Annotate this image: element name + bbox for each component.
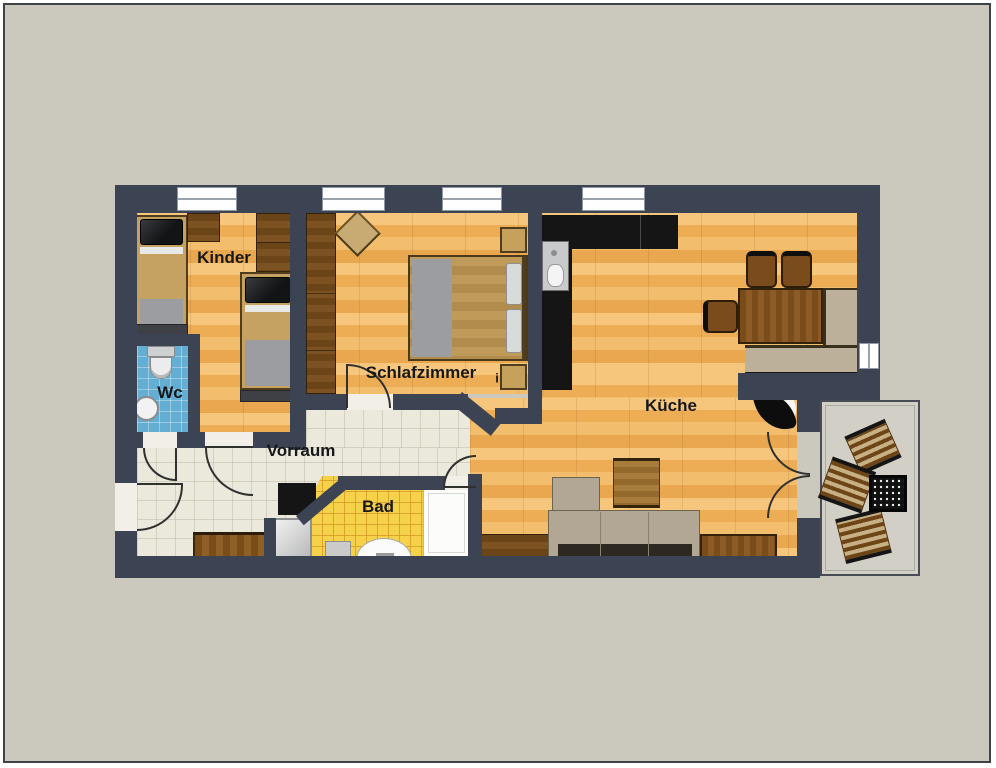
sofa-seam bbox=[600, 512, 601, 561]
double-bed bbox=[408, 255, 528, 361]
kinder-bed-2-blanket bbox=[245, 340, 291, 386]
wall-wc-right bbox=[188, 334, 200, 448]
balcony-table bbox=[869, 475, 907, 512]
double-bed-pillow-2 bbox=[506, 309, 522, 353]
kitchen-faucet bbox=[551, 250, 557, 256]
wall-kinder-schlafzimmer bbox=[290, 213, 306, 450]
entrance-door-leaf bbox=[137, 483, 183, 485]
schlafzimmer-door-leaf bbox=[346, 364, 348, 408]
wc-door-opening bbox=[143, 432, 177, 448]
window-divider bbox=[178, 198, 236, 200]
sofa-seam bbox=[648, 512, 649, 561]
kinder-door-leaf bbox=[205, 446, 253, 448]
window-divider bbox=[583, 198, 644, 200]
double-bed-pillow-1 bbox=[506, 263, 522, 305]
window-kueche bbox=[582, 187, 645, 211]
window-schlafzimmer-2 bbox=[442, 187, 502, 211]
wall-left-lower bbox=[115, 531, 137, 558]
room-label-bad: Bad bbox=[362, 497, 394, 517]
floor-plan-page: { "plan": { "type": "apartment-floor-pla… bbox=[0, 0, 996, 768]
kinder-wardrobe-seam bbox=[257, 242, 291, 243]
kitchen-sink bbox=[542, 241, 569, 291]
bathtub-inner-line bbox=[428, 493, 465, 553]
room-label-kinder: Kinder bbox=[197, 248, 251, 268]
dining-chair-2 bbox=[781, 251, 812, 288]
wall-schlafzimmer-kueche bbox=[528, 213, 542, 424]
wc-door-leaf bbox=[175, 448, 177, 481]
wall-wc-top bbox=[137, 334, 188, 346]
room-label-wc: Wc bbox=[157, 383, 183, 403]
room-label-vorraum: Vorraum bbox=[267, 441, 336, 461]
kinder-bed-1 bbox=[135, 215, 188, 335]
bathtub bbox=[423, 488, 470, 558]
counter-seam bbox=[640, 215, 641, 249]
shower bbox=[272, 518, 312, 558]
dining-chair-1 bbox=[746, 251, 777, 288]
wall-left-upper bbox=[115, 213, 137, 483]
room-label-kueche: Küche bbox=[645, 396, 697, 416]
wardrobe-seam bbox=[307, 350, 335, 351]
coffee-table bbox=[613, 458, 660, 508]
schlafzimmer-wardrobe bbox=[306, 213, 336, 394]
kinder-bed-2 bbox=[240, 272, 296, 390]
wc-sink bbox=[134, 396, 159, 421]
kinder-shelf bbox=[187, 213, 220, 242]
wardrobe-seam bbox=[307, 293, 335, 294]
door-marker-label: i bbox=[495, 371, 499, 386]
toilet-tank bbox=[147, 346, 175, 357]
window-divider bbox=[323, 198, 384, 200]
kitchen-sink-basin bbox=[547, 264, 564, 287]
wall-bad-left bbox=[264, 518, 276, 558]
kinder-bed-1-sheet bbox=[140, 247, 183, 254]
kinder-wardrobe bbox=[256, 213, 292, 272]
kinder-bed-2-sheet bbox=[245, 305, 291, 312]
nightstand-bottom bbox=[500, 364, 527, 390]
nightstand-top bbox=[500, 227, 527, 253]
window-dining-right bbox=[859, 343, 879, 369]
window-schlafzimmer-1 bbox=[322, 187, 385, 211]
double-bed-blanket bbox=[412, 259, 452, 357]
window-kinder bbox=[177, 187, 237, 211]
window-divider bbox=[868, 344, 870, 368]
wall-bad-top bbox=[338, 476, 445, 490]
dining-chair-3 bbox=[703, 300, 738, 333]
bad-door-leaf bbox=[443, 486, 476, 488]
dining-table bbox=[738, 288, 823, 344]
wall-balcony-upper bbox=[797, 392, 820, 432]
wall-balcony-lower bbox=[797, 518, 820, 558]
double-bed-headboard bbox=[522, 257, 526, 359]
kinder-bed-2-pillow bbox=[245, 277, 291, 303]
window-divider bbox=[443, 198, 501, 200]
toilet-bowl bbox=[150, 357, 172, 379]
corner-bench-horizontal bbox=[745, 345, 857, 372]
entrance-opening bbox=[115, 483, 137, 531]
kinder-bed-1-pillow bbox=[140, 219, 183, 245]
room-label-schlafzimmer: Schlafzimmer bbox=[366, 363, 477, 383]
kinder-bed-2-footboard bbox=[240, 390, 296, 402]
wall-bottom bbox=[115, 556, 820, 578]
